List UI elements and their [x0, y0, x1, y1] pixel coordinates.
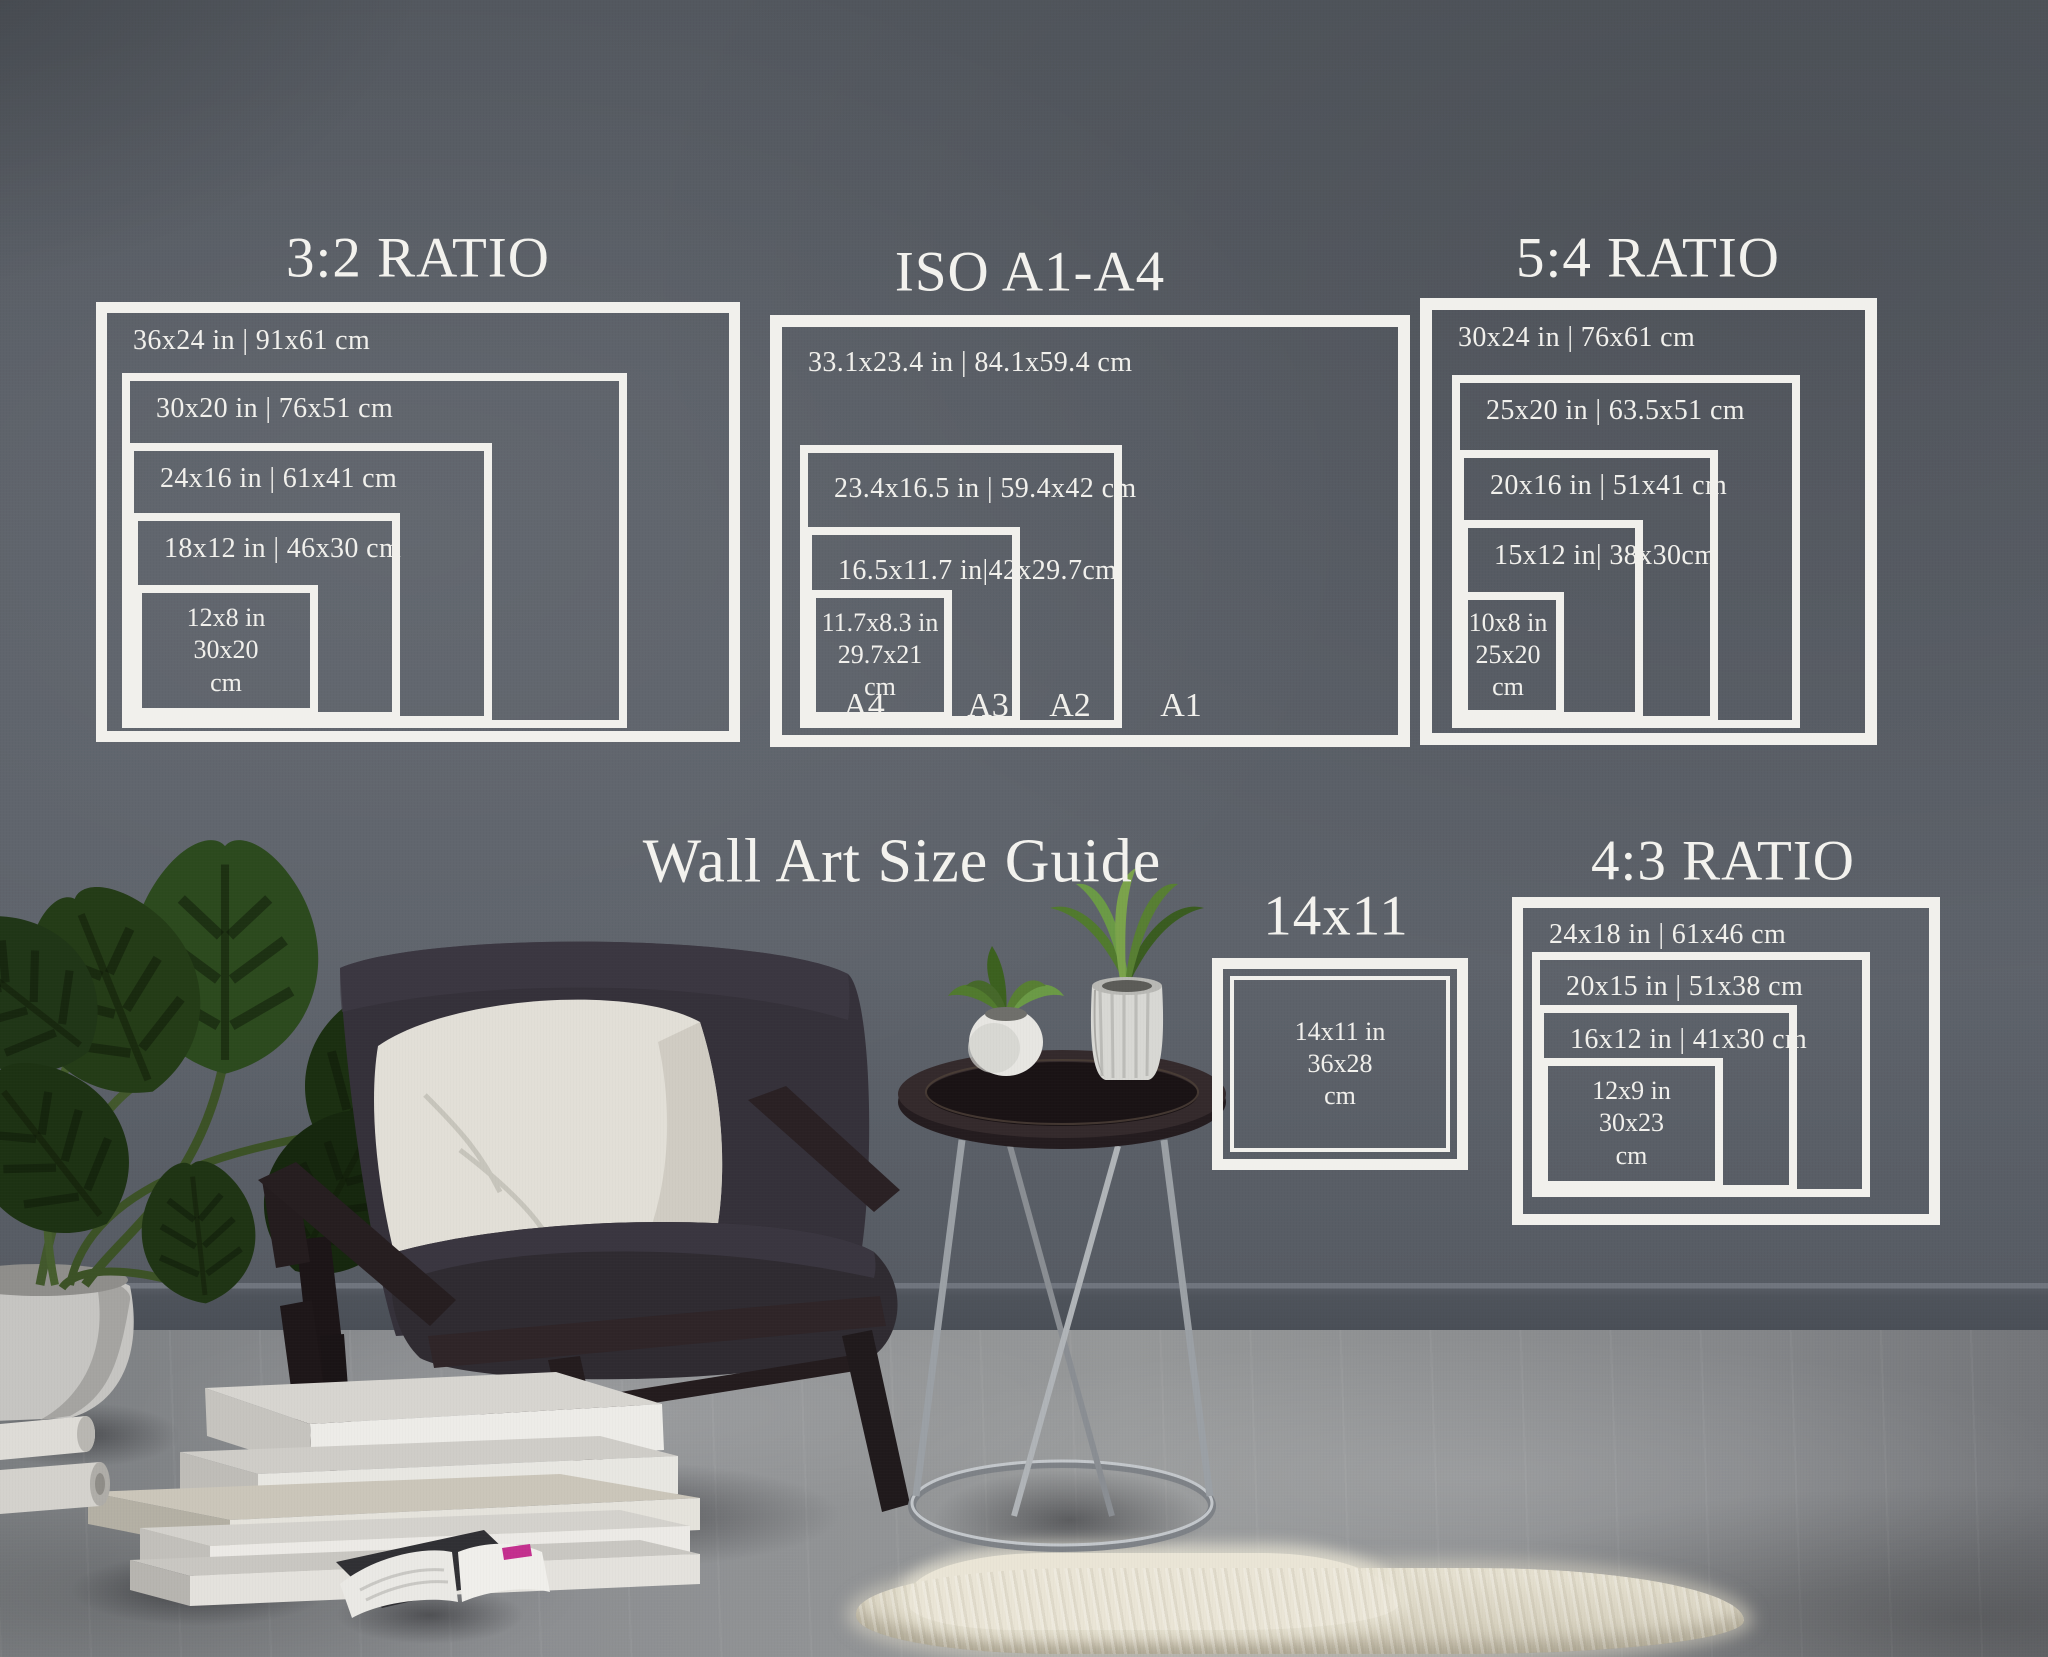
ratio-5-4-size-label-0: 30x24 in | 76x61 cm: [1432, 310, 1865, 352]
iso-a1-a4-size-label-line-0: 11.7x8.3 in: [822, 607, 939, 639]
iso-a1-a4-title: ISO A1-A4: [895, 240, 1165, 305]
ratio-3-2-size-label-2: 24x16 in | 61x41 cm: [134, 451, 484, 493]
ratio-4-3-frame-3: 12x9 in30x23cm: [1540, 1058, 1723, 1189]
ratio-4-3-size-label-line-0: 12x9 in: [1592, 1075, 1671, 1107]
iso-a1-a4-size-label-1: 23.4x16.5 in | 59.4x42 cm: [808, 453, 1114, 503]
ratio-3-2-size-label-3: 18x12 in | 46x30 cm: [138, 521, 392, 563]
iso-a1-a4-paper-label-A1: A1: [1160, 687, 1202, 725]
ratio-3-2-frame-4: 12x8 in30x20cm: [134, 585, 318, 716]
ratio-3-2-size-label-line-2: cm: [210, 667, 242, 699]
ratio-5-4-size-label-3: 15x12 in| 38x30cm: [1468, 528, 1635, 570]
ratio-3-2-title: 3:2 RATIO: [286, 226, 550, 291]
ratio-5-4-frame-4: 10x8 in25x20cm: [1452, 592, 1564, 718]
size-14x11-title: 14x11: [1263, 884, 1408, 949]
ratio-4-3-size-label-2: 16x12 in | 41x30 cm: [1544, 1013, 1789, 1054]
ratio-3-2-size-label-line-1: 30x20: [194, 634, 259, 666]
ratio-3-2-size-label-0: 36x24 in | 91x61 cm: [107, 313, 729, 355]
ratio-4-3-size-label-line-1: 30x23: [1599, 1107, 1664, 1139]
ratio-5-4-size-label-line-0: 10x8 in: [1469, 607, 1548, 639]
ratio-5-4-title: 5:4 RATIO: [1516, 226, 1780, 291]
ratio-4-3-size-label-line-2: cm: [1616, 1140, 1648, 1172]
iso-a1-a4-paper-label-A2: A2: [1049, 687, 1091, 725]
wall-art-size-guide-poster: 3:2 RATIO36x24 in | 91x61 cm30x20 in | 7…: [0, 0, 2048, 1657]
ratio-5-4-size-label-1: 25x20 in | 63.5x51 cm: [1460, 383, 1792, 425]
ratio-4-3-size-label-center: 12x9 in30x23cm: [1548, 1066, 1715, 1181]
page-title: Wall Art Size Guide: [643, 827, 1162, 898]
iso-a1-a4-size-label-line-1: 29.7x21: [838, 639, 923, 671]
size-14x11-size-label-line-2: cm: [1324, 1080, 1356, 1112]
size-14x11-size-label-line-0: 14x11 in: [1295, 1016, 1386, 1048]
ratio-5-4-size-label-line-2: cm: [1492, 671, 1524, 703]
size-14x11-size-label-center: 14x11 in36x28cm: [1223, 969, 1457, 1159]
ratio-5-4-size-label-center: 10x8 in25x20cm: [1460, 600, 1556, 710]
iso-a1-a4-size-label-0: 33.1x23.4 in | 84.1x59.4 cm: [782, 327, 1398, 377]
ratio-3-2-size-label-line-0: 12x8 in: [187, 602, 266, 634]
iso-a1-a4-paper-label-A4: A4: [843, 687, 885, 725]
size-14x11-frame-0: 14x11 in36x28cm: [1212, 958, 1468, 1170]
ratio-3-2-size-label-center: 12x8 in30x20cm: [142, 593, 310, 708]
size-14x11-size-label-line-1: 36x28: [1308, 1048, 1373, 1080]
iso-a1-a4-size-label-2: 16.5x11.7 in|42x29.7cm: [812, 535, 1012, 585]
ratio-4-3-size-label-0: 24x18 in | 61x46 cm: [1523, 908, 1929, 949]
iso-a1-a4-paper-label-A3: A3: [967, 687, 1009, 725]
ratio-5-4-size-label-line-1: 25x20: [1476, 639, 1541, 671]
ratio-3-2-size-label-1: 30x20 in | 76x51 cm: [130, 381, 619, 423]
ratio-4-3-title: 4:3 RATIO: [1591, 829, 1855, 894]
ratio-5-4-size-label-2: 20x16 in | 51x41 cm: [1464, 458, 1710, 500]
ratio-4-3-size-label-1: 20x15 in | 51x38 cm: [1540, 960, 1862, 1001]
